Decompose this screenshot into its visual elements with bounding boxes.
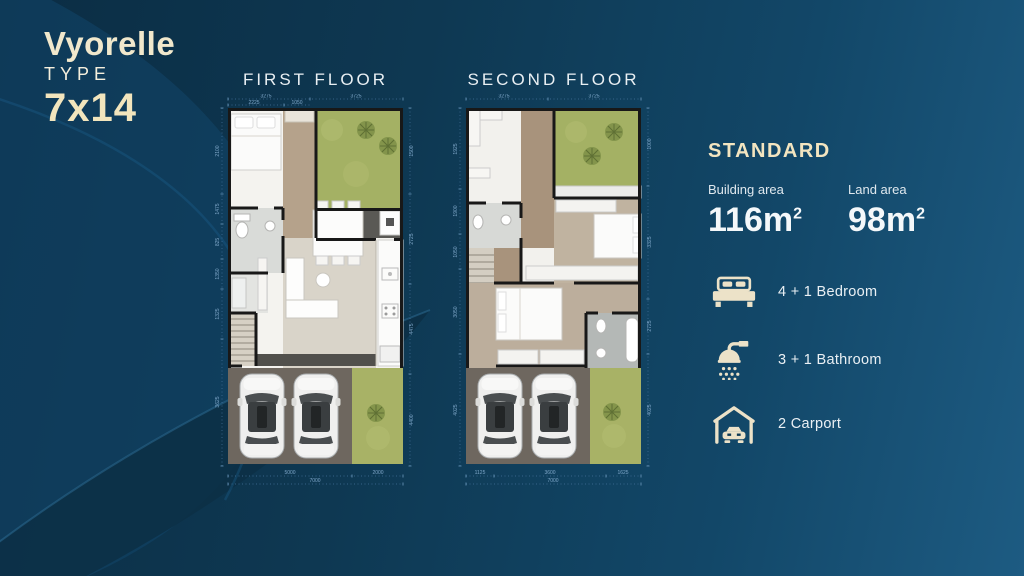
bed-icon xyxy=(708,276,760,308)
dim-label: 3725 xyxy=(588,94,599,100)
carport-icon xyxy=(708,404,760,444)
dim-label: 7000 xyxy=(547,478,558,484)
wardrobe xyxy=(526,266,638,280)
dim-label: 1900 xyxy=(453,205,459,216)
dim-label: 2100 xyxy=(215,145,221,156)
dim-label: 1000 xyxy=(647,138,653,149)
land-area: Land area 98m2 xyxy=(848,182,925,240)
dim-label: 4475 xyxy=(409,323,415,334)
second-floor-plan: 3275 3725 1925 1900 1050 3050 4025 1000 … xyxy=(446,94,661,496)
dim-label: 1325 xyxy=(215,308,221,319)
dim-label: 4400 xyxy=(409,414,415,425)
hallway-floor xyxy=(283,108,316,238)
brand-logo: Vyorelle TYPE 7x14 xyxy=(44,26,175,130)
dim-label: 1050 xyxy=(453,246,459,257)
land-area-label: Land area xyxy=(848,182,925,197)
first-floor-plan: 3275 3725 2225 1050 2100 1475 825 1350 1… xyxy=(208,94,423,496)
building-area-value: 116m2 xyxy=(708,201,802,240)
spec-heading: STANDARD xyxy=(708,140,831,163)
dim-label: 3725 xyxy=(350,94,361,100)
dim-label: 1625 xyxy=(617,470,628,476)
land-area-value: 98m2 xyxy=(848,201,925,240)
dim-label: 3275 xyxy=(498,94,509,100)
dim-label: 1125 xyxy=(475,470,486,476)
roof-garden xyxy=(554,108,641,186)
feature-bathroom: 3 + 1 Bathroom xyxy=(708,340,882,380)
entry-step xyxy=(256,354,376,366)
dim-label: 3050 xyxy=(453,306,459,317)
dim-label: 1475 xyxy=(215,203,221,214)
feature-carport-label: 2 Carport xyxy=(778,416,841,432)
dim-label: 2225 xyxy=(248,100,259,106)
dim-label: 1500 xyxy=(409,145,415,156)
feature-bedroom-label: 4 + 1 Bedroom xyxy=(778,284,877,300)
first-floor-title: FIRST FLOOR xyxy=(208,70,423,90)
dim-label: 1925 xyxy=(453,143,459,154)
dim-label: 7000 xyxy=(309,478,320,484)
dim-label: 5000 xyxy=(284,470,295,476)
feature-carport: 2 Carport xyxy=(708,404,841,444)
dim-label: 3325 xyxy=(647,236,653,247)
dining-table xyxy=(313,210,363,256)
corridor-floor xyxy=(521,108,554,248)
dim-label: 4025 xyxy=(647,404,653,415)
dim-label: 2725 xyxy=(647,320,653,331)
dim-label: 3600 xyxy=(544,470,555,476)
staircase xyxy=(228,313,256,366)
feature-bathroom-label: 3 + 1 Bathroom xyxy=(778,352,882,368)
brand-name: Vyorelle xyxy=(44,26,175,62)
feature-bedroom: 4 + 1 Bedroom xyxy=(708,276,877,308)
dim-label: 2725 xyxy=(409,233,415,244)
shower-icon xyxy=(708,340,760,380)
dim-label: 4025 xyxy=(453,404,459,415)
dim-label: 2000 xyxy=(372,470,383,476)
building-area-label: Building area xyxy=(708,182,802,197)
tv-cabinet xyxy=(258,258,267,310)
dim-label: 3275 xyxy=(260,94,271,100)
dim-label: 825 xyxy=(215,238,221,247)
brand-type-label: TYPE xyxy=(44,65,175,85)
slide: Vyorelle TYPE 7x14 FIRST FLOOR xyxy=(0,0,1024,576)
dim-label: 1350 xyxy=(215,268,221,279)
dim-label: 3625 xyxy=(215,396,221,407)
second-floor-title: SECOND FLOOR xyxy=(446,70,661,90)
brand-type-value: 7x14 xyxy=(44,86,175,130)
dim-label: 1050 xyxy=(291,100,302,106)
building-area: Building area 116m2 xyxy=(708,182,802,240)
